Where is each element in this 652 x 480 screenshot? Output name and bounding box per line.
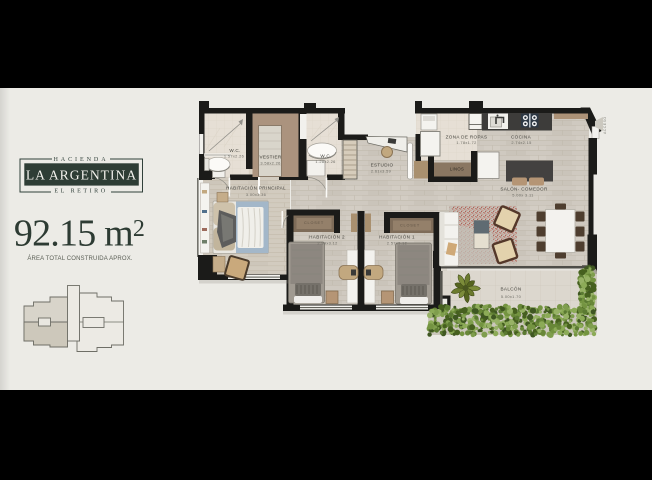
svg-text:ESTUDIO: ESTUDIO (371, 163, 394, 168)
svg-text:HABITACIÓN 1: HABITACIÓN 1 (379, 234, 415, 240)
svg-text:EL RETIRO: EL RETIRO (54, 188, 107, 194)
svg-text:SALÓN- COMEDOR: SALÓN- COMEDOR (500, 186, 548, 192)
svg-text:LINOS: LINOS (450, 167, 464, 172)
svg-text:HACIENDA: HACIENDA (53, 157, 108, 163)
svg-text:1.57x2.26: 1.57x2.26 (224, 154, 244, 159)
svg-text:LA ARGENTINA: LA ARGENTINA (26, 167, 137, 182)
svg-text:CLOSET: CLOSET (400, 224, 420, 228)
svg-text:W.C.: W.C. (320, 154, 331, 159)
svg-text:1.78x1.72: 1.78x1.72 (456, 140, 476, 145)
svg-text:2.57x3.12: 2.57x3.12 (387, 241, 407, 246)
svg-text:ACCESO: ACCESO (603, 116, 607, 134)
svg-text:1.28x2.26: 1.28x2.26 (315, 159, 335, 164)
svg-text:3.58x2.26: 3.58x2.26 (260, 161, 280, 166)
svg-text:ÁREA TOTAL CONSTRUIDA APROX.: ÁREA TOTAL CONSTRUIDA APROX. (27, 255, 133, 262)
svg-text:VESTIER: VESTIER (259, 155, 281, 160)
svg-text:92.15 m2: 92.15 m2 (14, 213, 144, 255)
svg-text:BALCÓN: BALCÓN (501, 286, 522, 292)
svg-text:5.00x1.70: 5.00x1.70 (501, 294, 522, 299)
svg-text:2.61x3.59: 2.61x3.59 (371, 169, 391, 174)
svg-text:COCINA: COCINA (511, 135, 532, 140)
svg-text:W.C.: W.C. (229, 148, 240, 153)
svg-text:CLOSET: CLOSET (304, 221, 324, 225)
svg-text:HABITACIÓN 2: HABITACIÓN 2 (309, 234, 345, 240)
svg-text:HABITACIÓN PRINCIPAL: HABITACIÓN PRINCIPAL (226, 185, 286, 191)
svg-text:3.00x3.36: 3.00x3.36 (246, 192, 266, 197)
svg-text:2.99x3.12: 2.99x3.12 (317, 241, 337, 246)
svg-text:ZONA DE ROPAS: ZONA DE ROPAS (446, 135, 488, 140)
svg-text:2.74x2.15: 2.74x2.15 (511, 140, 531, 145)
svg-text:5.00x 3.11: 5.00x 3.11 (512, 193, 533, 198)
